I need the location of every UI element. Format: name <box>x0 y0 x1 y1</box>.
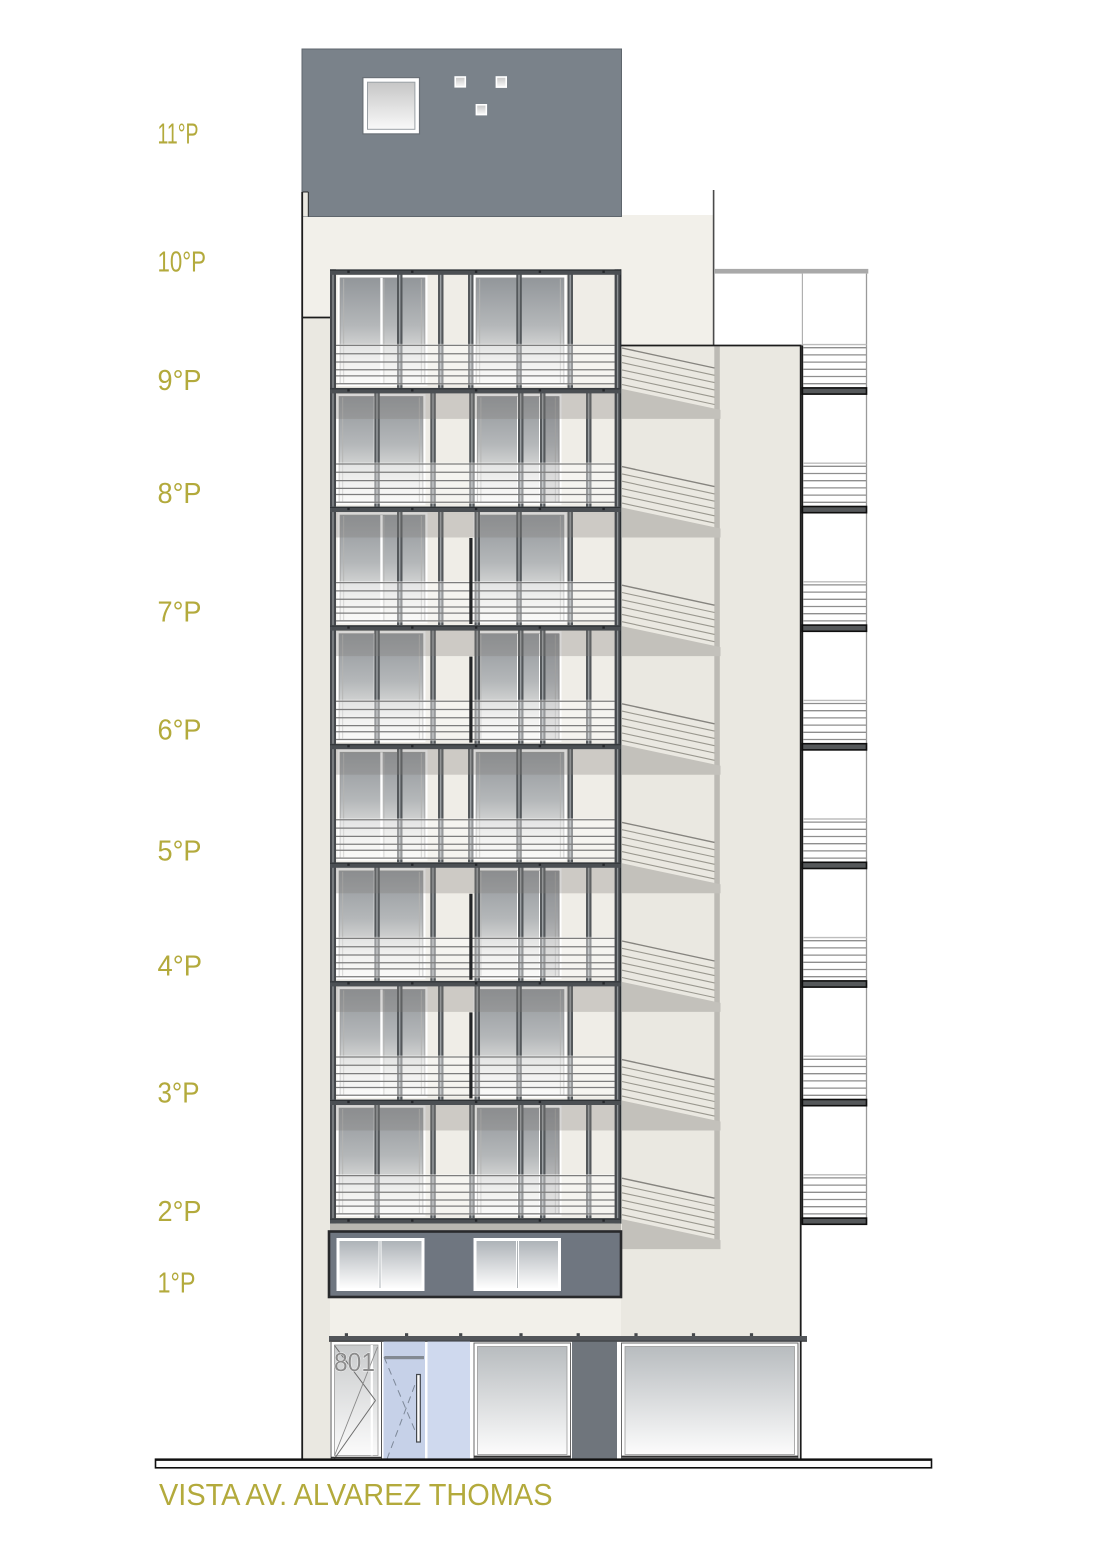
svg-text:4°P: 4°P <box>158 950 203 982</box>
svg-text:8°P: 8°P <box>158 478 202 510</box>
svg-text:7°P: 7°P <box>158 596 202 628</box>
svg-text:801: 801 <box>334 1347 375 1377</box>
svg-text:9°P: 9°P <box>158 365 202 397</box>
svg-text:5°P: 5°P <box>158 835 202 867</box>
svg-text:10°P: 10°P <box>158 246 207 278</box>
svg-text:VISTA AV. ALVAREZ THOMAS: VISTA AV. ALVAREZ THOMAS <box>159 1477 553 1512</box>
svg-text:11°P: 11°P <box>158 118 199 150</box>
svg-text:6°P: 6°P <box>158 714 202 746</box>
svg-text:3°P: 3°P <box>158 1077 200 1109</box>
svg-text:1°P: 1°P <box>158 1267 196 1299</box>
svg-text:2°P: 2°P <box>158 1196 202 1228</box>
